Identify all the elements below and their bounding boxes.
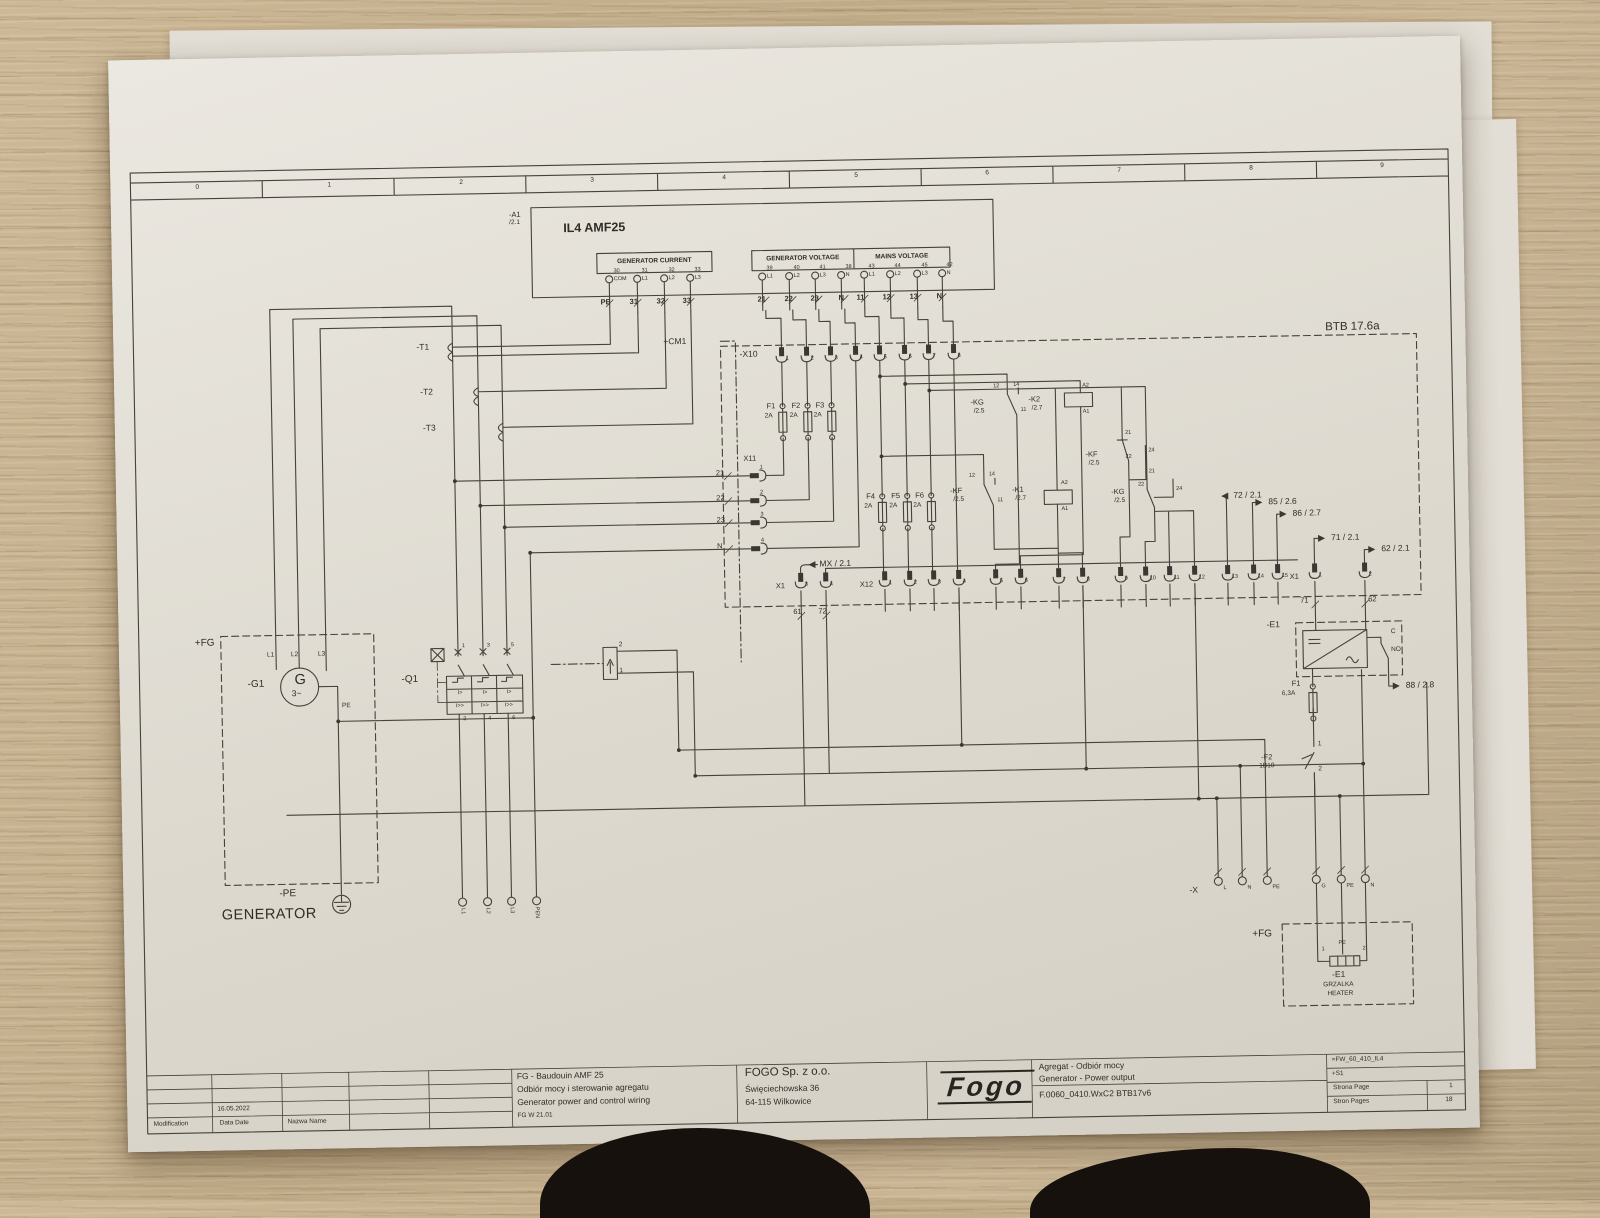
wire-number: N [936,292,942,300]
terminal-number: 4 [830,582,833,588]
terminal-hook [760,470,766,481]
terminal-plug [907,571,912,580]
fuse-rating: 2A [864,504,872,511]
ubox-symbol [603,647,618,679]
k1-a2: A2 [1061,481,1068,487]
pin-name: L3 [820,273,826,279]
tb-project-1: Agregat - Odbiór mocy [1039,1061,1125,1071]
kg1-id: -KG [970,398,983,406]
tb-pages-label: Stron Pages [1333,1099,1369,1106]
tb-desc-1: FG - Baudouin AMF 25 [517,1071,604,1081]
photo-scene: -A1 /2.1 IL4 AMF25 GENERATOR CURRENT GEN… [0,0,1600,1200]
pin-number: 30 [614,269,620,275]
wire-number: 22 [785,295,793,303]
heater-name-en: HEATER [1327,991,1353,998]
fuse-id: F2 [791,402,800,410]
q1-bottom-number: 6 [512,716,515,722]
terminal-number: 3 [761,513,764,519]
terminal-plug [828,346,833,355]
pin-name: L2 [794,274,800,280]
ubox-p2: 2 [619,642,623,649]
q1-bottom-number: 2 [463,717,466,723]
arrow-72: 72 / 2.1 [1233,490,1262,499]
k1-ref: /2.7 [1015,496,1026,503]
plc-pin [887,271,894,278]
fuse-body [804,408,812,435]
fuse-rating: 2A [765,413,773,420]
ct-symbols [448,342,503,442]
plc-pin [838,272,845,279]
heater-pe: PE [1338,941,1345,947]
tb-date2: 16.05.2022 [217,1106,250,1113]
junction-dot [503,525,507,529]
tb-desc-2: Odbiór mocy i sterowanie agregatu [517,1083,649,1094]
plc-pin [812,272,819,279]
wire-number: 21 [758,295,766,303]
ruler-number: 7 [1117,168,1121,175]
terminal-circle [1238,877,1246,885]
terminal-plug [751,520,760,525]
pin-number: 32 [669,268,675,274]
arrow-right-icon [1255,499,1262,506]
plc-pin [861,271,868,278]
kf2-p22: 22 [1126,455,1132,461]
gen-pe: PE [342,703,351,710]
fuse-body [828,408,836,435]
terminal-number: 1 [1319,573,1322,579]
e1-no: NO [1391,647,1401,654]
junction-dot [878,374,882,378]
k2-ref: /2.7 [1032,405,1043,412]
terminal-plug [956,570,961,579]
f2-rating: 1B10 [1259,763,1274,770]
plc-pin [786,272,793,279]
heater-p2: 2 [1363,947,1366,953]
pe-ref: -PE [279,889,296,899]
kg2-p24: 24 [1176,487,1182,493]
bottom-terminal-label: L1 [459,908,465,914]
junction-dot [677,748,681,752]
arrow-left-icon [1221,493,1228,500]
tb-s1: +S1 [1332,1071,1344,1078]
tb-desc-3: Generator power and control wiring [517,1096,650,1107]
tb-company-city: 64-115 Wilkowice [745,1097,811,1107]
heater-p1: 1 [1322,947,1325,953]
arrow-right-icon [1393,682,1400,689]
terminal-plug [1192,566,1197,575]
k1-a1: A1 [1061,507,1068,513]
x11-label: X11 [743,455,756,463]
fuse-rating: 2A [889,503,897,510]
kf1-p14: 14 [989,472,995,478]
q1-i2: I>> [505,703,513,709]
k1-id: -K1 [1012,486,1024,494]
frame-border [130,149,1465,1134]
gen-l3: L3 [318,652,325,659]
e1-charger-box [1303,630,1368,669]
terminal-number: 3 [938,580,941,586]
kf1-p12: 12 [969,474,975,480]
q1-i2: I>> [481,704,489,710]
x1-left-label: X1 [776,582,785,590]
terminal-plug [779,347,784,356]
gen-l1: L1 [267,653,274,660]
terminal-number: 2 [811,357,814,363]
earth-symbol [334,896,348,910]
junction-dot [1197,797,1201,801]
fuse-id: F4 [866,493,875,501]
terminal-plug [1167,566,1172,575]
terminal-number: 3 [805,583,808,589]
heater-name-pl: GRZALKA [1323,982,1353,989]
arrow-left-icon [808,561,815,568]
terminal-number: 5 [1000,579,1003,585]
terminal-plug [1143,567,1148,576]
schematic-sheet: -A1 /2.1 IL4 AMF25 GENERATOR CURRENT GEN… [108,36,1480,1153]
q1-i1: I> [507,690,512,696]
fuse-body [1309,689,1317,716]
fuse-rating: 2A [814,412,822,419]
kg2-ref: /2.5 [1114,498,1125,505]
wire-number: 23 [717,516,725,524]
arrow-71: 71 / 2.1 [1331,533,1360,542]
pin-number: 42 [946,263,952,269]
terminal-circle [508,897,516,905]
junction-dot [927,389,931,393]
schematic-canvas [108,36,1480,1153]
xb-terminal-label: N [1247,886,1251,892]
k1-coil [1044,490,1072,505]
pin-number: 39 [766,266,772,272]
bottom-terminal-label: L3 [508,907,514,913]
junction-dot [528,551,532,555]
junction-dot [1238,764,1242,768]
plc-pin [687,274,694,281]
k2-coil [1064,392,1092,407]
terminal-plug [902,345,907,354]
arrow-right-icon [1318,535,1325,542]
kg2-p22: 22 [1138,483,1144,489]
f2-p2: 2 [1318,766,1322,773]
q1-bottom-number: 4 [488,717,491,723]
plc-pin [914,270,921,277]
terminal-circle [1361,875,1369,883]
wire-number: 31 [630,298,638,306]
e1-fuse-id: F1 [1292,680,1301,688]
terminal-plug [853,346,858,355]
pin-number: 40 [793,266,799,272]
terminal-number: 14 [1258,574,1264,580]
plc-sheet-ref: /2.1 [509,220,520,227]
pin-lead [942,277,943,307]
wire-71: 71 [1300,597,1308,605]
xb-terminal-label: L [1223,886,1226,892]
terminal-number: 12 [1199,575,1205,581]
xb-terminal-label: N [1370,883,1374,889]
btb-label: BTB 17.6a [1325,321,1380,333]
wire-number: 23 [811,294,819,302]
kg1-p12: 12 [993,384,999,390]
fuse-rating: 2A [913,503,921,510]
bottom-terminal-label: L2 [484,908,490,914]
k2-id: -K2 [1028,395,1040,403]
pin-name: L1 [767,274,773,280]
plc-pin [939,270,946,277]
gen-g: G [294,673,306,688]
tb-modification: Modification [154,1121,189,1128]
terminal-number: 1 [889,581,892,587]
ruler-number: 4 [722,175,726,182]
junction-dot [880,454,884,458]
kf2-ref: /2.5 [1089,460,1100,467]
wire-number: 32 [657,297,665,305]
arrow-62: 62 / 2.1 [1381,544,1410,553]
kf1-ref: /2.5 [953,497,964,504]
terminal-circle [1214,877,1222,885]
ruler-number: 1 [327,182,331,189]
q1-ref: -Q1 [401,675,418,685]
terminal-circle [1337,875,1345,883]
terminal-plug [931,570,936,579]
fuse-id: F3 [815,401,824,409]
terminal-number: 4 [761,539,764,545]
kg2-id: -KG [1111,488,1124,496]
terminal-circle [484,898,492,906]
bottom-terminal-label: PEN [533,907,539,918]
terminal-number: 1 [786,357,789,363]
terminal-number: 4 [963,580,966,586]
lower-routing-wires [282,536,1430,901]
terminal-number: 2 [1369,572,1372,578]
terminal-number: 9 [1125,577,1128,583]
terminal-plug [1251,565,1256,574]
x11-tap-wires [455,476,751,554]
ruler-number: 6 [985,170,989,177]
e1-ref: -E1 [1267,620,1280,629]
tb-project-2: Generator - Power output [1039,1073,1135,1083]
arrow-85: 85 / 2.6 [1268,497,1297,506]
pin-name: N [947,271,951,277]
terminal-number: 3 [835,356,838,362]
junction-dot [1084,767,1088,771]
pin-number: 43 [868,264,874,270]
wire-number: N [717,542,723,550]
pin-number: 41 [819,265,825,271]
q1-trip-unit [431,648,444,661]
tb-page-label: Strona Page [1333,1085,1369,1092]
arrow-right-icon [1280,510,1287,517]
q1-i1: I> [458,691,463,697]
wire-72: 72 [818,607,826,615]
terminal-number: 5 [884,355,887,361]
e1-fuse-leads [1300,669,1314,797]
terminal-number: 13 [1232,575,1238,581]
terminal-hook [760,495,766,506]
terminal-number: 8 [958,354,961,360]
plc-ref: -A1 [509,211,521,219]
terminal-number: 15 [1282,574,1288,580]
fuse-body [903,498,911,525]
terminal-number: 2 [760,491,763,497]
pin-number: 31 [642,269,648,275]
pin-name: L1 [869,272,875,278]
pin-number: 33 [695,268,701,274]
terminal-plug [951,344,956,353]
ubox-p1: 1 [619,668,623,675]
wire-61: 61 [793,608,801,616]
fuse-rating: 2A [790,413,798,420]
pin-number: 45 [921,263,927,269]
terminal-plug [926,344,931,353]
xb-label: -X [1189,886,1198,895]
k2-a1: A1 [1083,410,1090,416]
pin-name: N [846,273,850,279]
ct2-label: -T2 [420,388,433,397]
fuse-id: F6 [915,492,924,500]
tb-project-3: F.0060_0410.WxC2 BTB17v6 [1039,1089,1151,1100]
kg1-p11: 11 [1021,408,1027,414]
plc-pin [606,276,613,283]
fuse-body [878,499,886,526]
terminal-plug [877,345,882,354]
terminal-number: 7 [933,354,936,360]
terminal-plug [1225,565,1230,574]
tb-nazwaname: Nazwa Name [288,1119,327,1126]
q1-i1: I> [483,691,488,697]
xb-terminal-label: PE [1346,884,1353,890]
junction-dot [1361,762,1365,766]
arrow-86: 86 / 2.7 [1293,508,1322,517]
tb-company-street: Święciechowska 36 [745,1084,819,1094]
f2-id: -F2 [1261,753,1272,761]
tb-datadate: Data Date [220,1120,249,1127]
kf1-p11: 11 [997,498,1003,504]
fuse-id: F5 [891,492,900,500]
terminal-plug [823,572,828,581]
pin-number: 38 [845,265,851,271]
e1-contact [1367,637,1397,687]
heater-fg: +FG [1252,929,1272,939]
junction-dot [1215,796,1219,800]
terminal-number: 6 [1025,579,1028,585]
kf1-id: -KF [950,487,962,495]
q1-top-number: 5 [511,643,514,649]
plc-title: IL4 AMF25 [563,221,625,235]
terminal-circle [533,897,541,905]
plc-pin [634,275,641,282]
junction-dot [453,479,457,483]
terminal-number: 10 [1150,576,1156,582]
wire-number: 12 [883,293,891,301]
q1-i2: I>> [456,704,464,710]
q1-trip-links [437,661,447,702]
wire-number: 21 [716,469,724,477]
terminal-hook [761,543,767,554]
pin-name: L2 [895,272,901,278]
x12-label: X12 [860,581,873,589]
kf2-id: -KF [1085,450,1097,458]
terminal-plug [750,473,759,478]
junction-dot [960,743,964,747]
terminal-number: 6 [909,355,912,361]
terminal-plug [751,546,760,551]
generator-caption: GENERATOR [222,907,317,923]
mx-arrow-label: MX / 2.1 [819,559,851,568]
tb-company-name: FOGO Sp. z o.o. [745,1066,831,1079]
tb-pages-value: 18 [1445,1097,1452,1104]
tb-desc-4: FG W 21.01 [517,1113,552,1120]
foreground-object-right [1030,1148,1370,1218]
terminal-plug [1018,569,1023,578]
terminal-hook [761,517,767,528]
tb-page-value: 1 [1449,1083,1453,1090]
terminal-number: 8 [1087,578,1090,584]
pin-name: L1 [642,277,648,283]
pin-name: L3 [922,271,928,277]
terminal-circle [1263,876,1271,884]
junction-dot [478,504,482,508]
x1-right-label: X1 [1290,573,1299,581]
junction-dot [336,719,340,723]
wire-number: 22 [716,494,724,502]
ruler-number: 3 [590,178,594,185]
terminal-plug [1056,568,1061,577]
cm1-label: +CM1 [663,337,686,346]
pin-number: 44 [894,264,900,270]
plc-pin [661,275,668,282]
terminal-number: 7 [1063,578,1066,584]
ct1-label: -T1 [416,343,429,352]
junction-dot [903,382,907,386]
pin-name: L3 [695,276,701,282]
gen-fg: +FG [195,639,215,649]
pin-name: COM [614,277,627,283]
wire-number: PE [601,298,611,306]
terminal-plug [798,573,803,582]
terminal-circle [1312,875,1320,883]
ruler-number: 9 [1380,163,1384,170]
xb-terminal-label: PE [1272,885,1279,891]
fuse-body [779,409,787,436]
e1-fuse-a: 6,3A [1282,691,1295,698]
tb-code: =FW_60_410_IL4 [1332,1056,1384,1063]
ruler-number: 2 [459,180,463,187]
terminal-circle [459,898,467,906]
terminal-number: 2 [914,581,917,587]
arrow-88: 88 / 2.8 [1406,680,1435,689]
xb-terminal-label: G [1321,884,1325,890]
fuse-id: F1 [766,402,775,410]
terminal-plug [1312,563,1317,572]
kf2-p21b: 21 [1149,469,1155,475]
gen-ref: -G1 [247,680,264,690]
heater-ref: -E1 [1332,970,1345,979]
q1-top-number: 1 [462,644,465,650]
kf2-p24: 24 [1148,448,1154,454]
kg1-p14: 14 [1013,383,1019,389]
arrow-right-icon [1368,546,1375,553]
terminal-plug [1118,567,1123,576]
ct-secondary-wires [452,312,693,428]
q1-top-number: 3 [487,644,490,650]
pin-name: L2 [669,276,675,282]
ruler-number: 8 [1249,166,1253,173]
terminal-number: 4 [860,356,863,362]
fuse-body [927,498,935,525]
e1-c: C [1391,629,1396,636]
f2-p1: 1 [1318,741,1322,748]
ruler-number: 0 [195,185,199,192]
